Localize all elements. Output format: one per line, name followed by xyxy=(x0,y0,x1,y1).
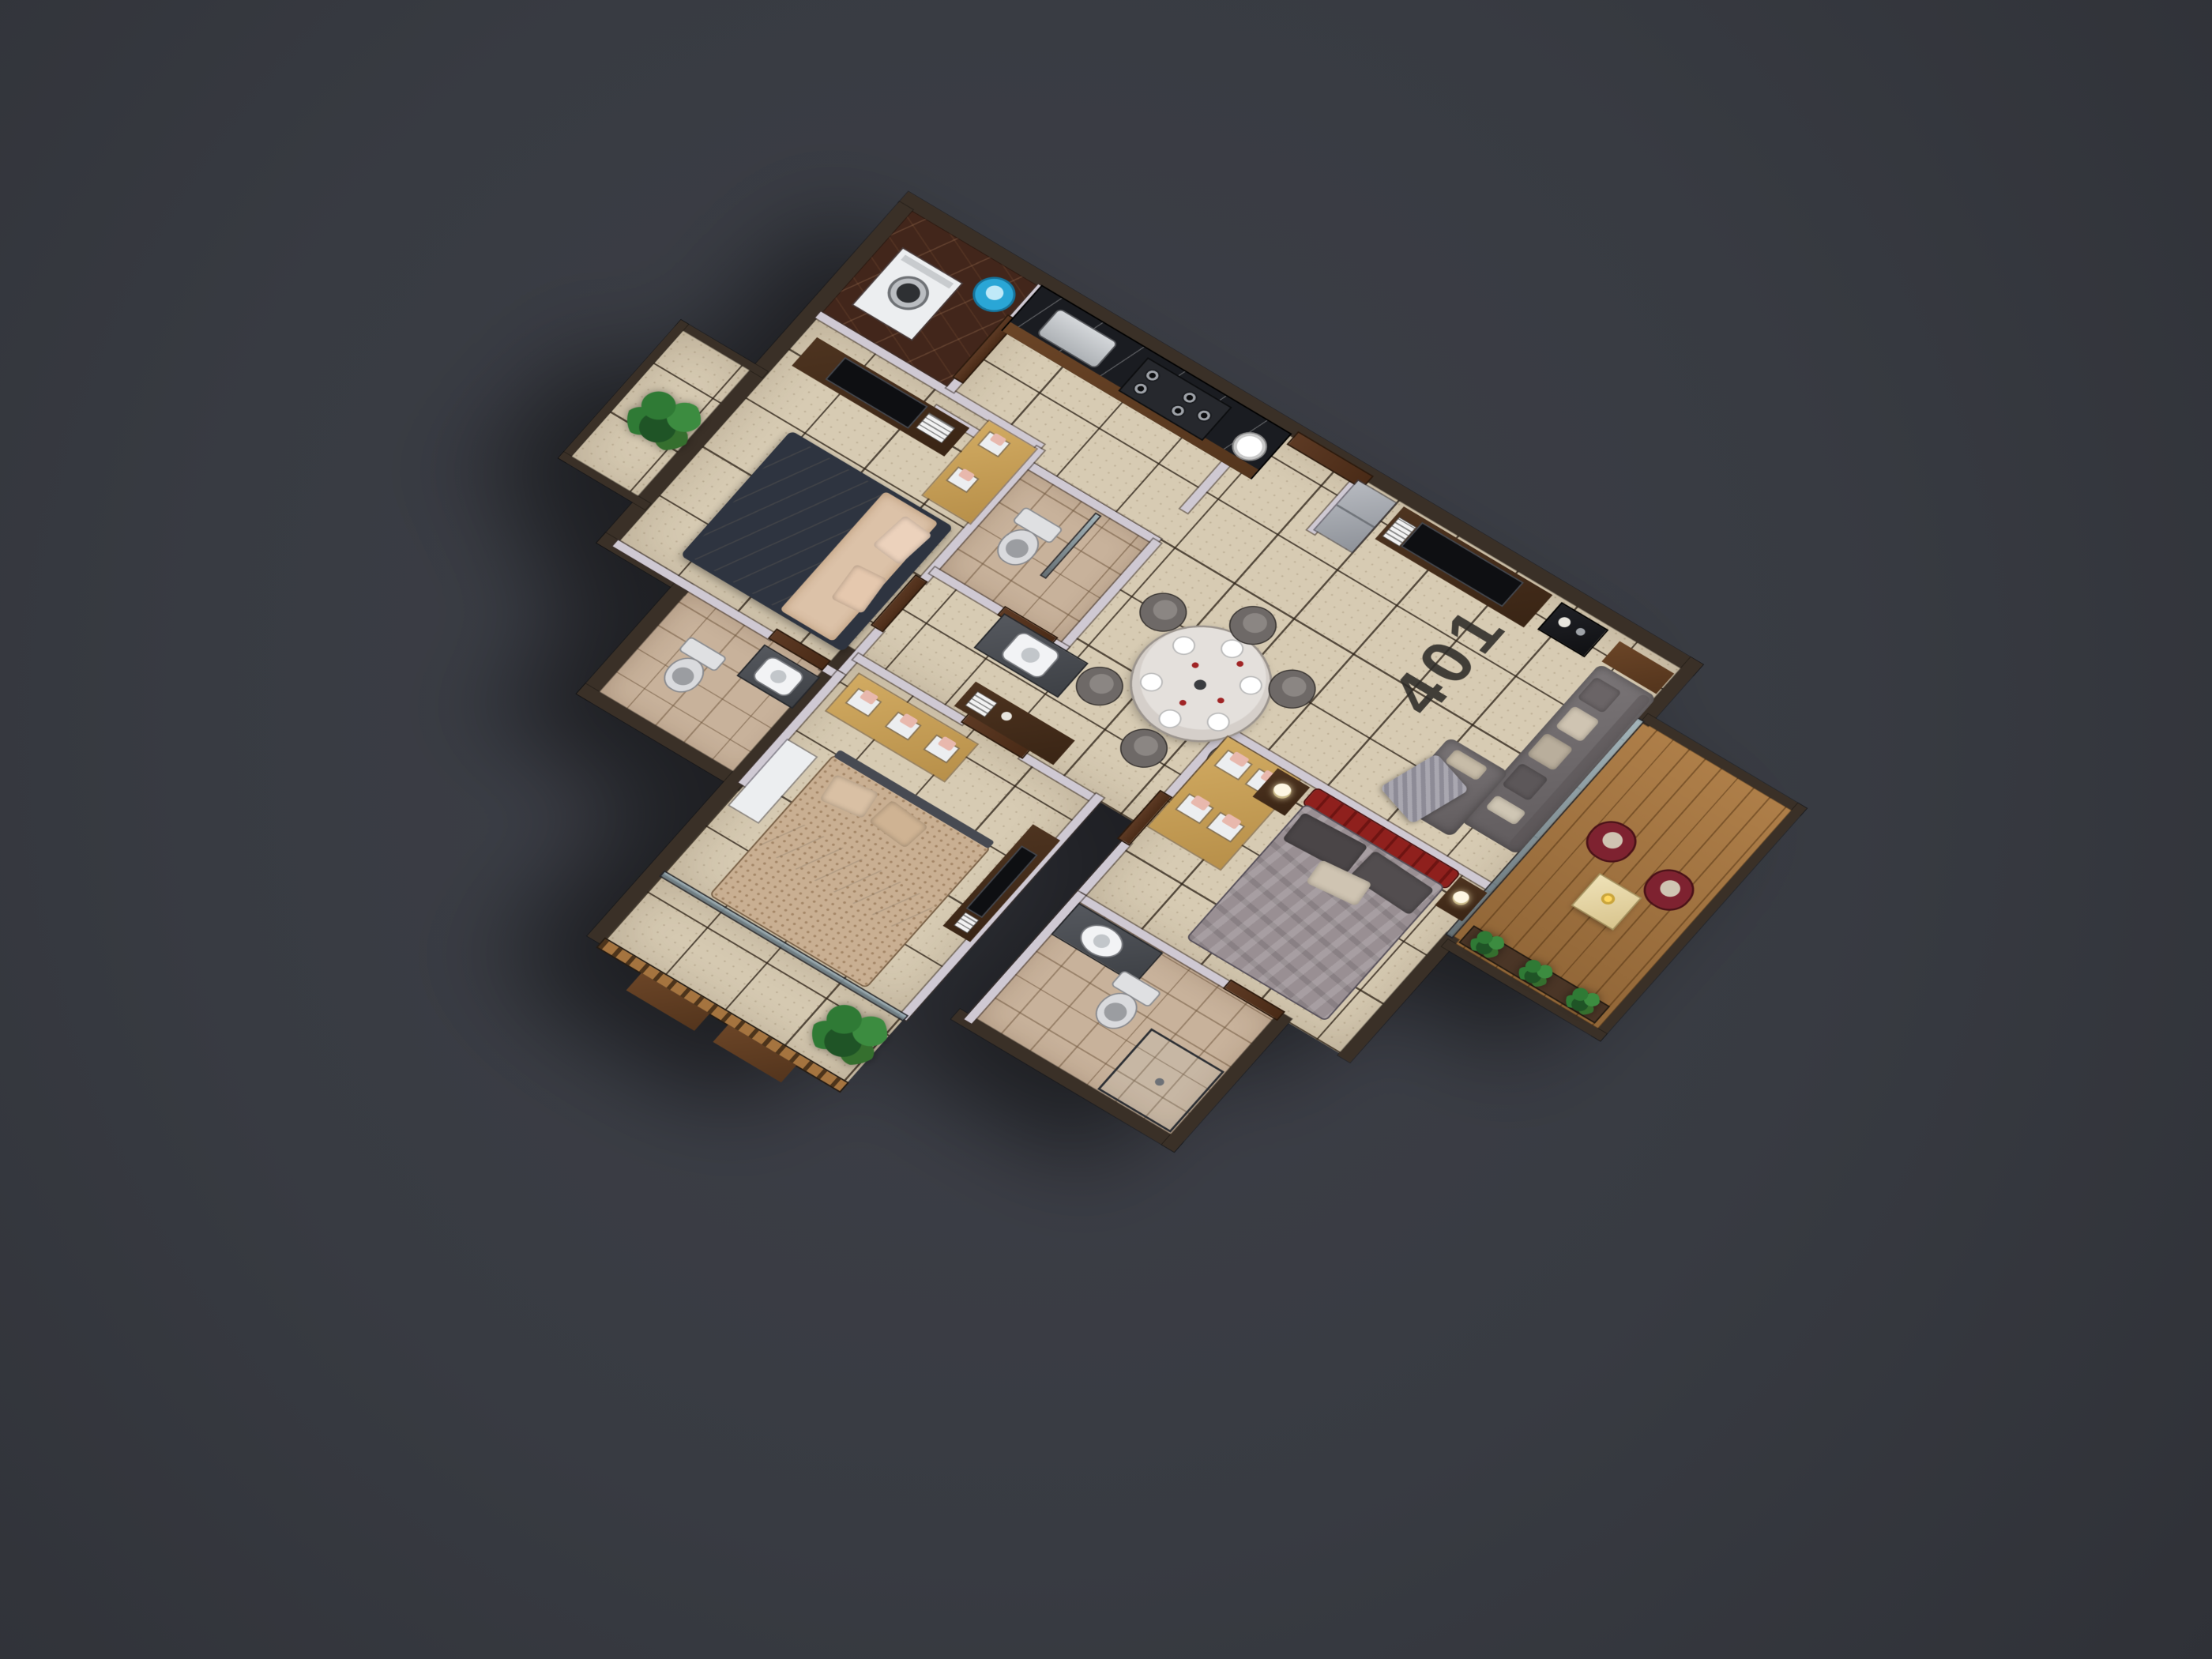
lamp-icon xyxy=(1449,889,1473,908)
books-bedroom2 xyxy=(916,413,954,442)
sofa-pillow xyxy=(1526,732,1574,771)
sofa-pillow xyxy=(1555,705,1600,743)
table-centerpiece xyxy=(1191,678,1209,692)
sofa-bolster xyxy=(1485,795,1526,826)
apartment-floor-plan: 401 xyxy=(273,161,1860,1403)
glass-red-icon xyxy=(1216,697,1225,705)
sofa-pillow xyxy=(1502,762,1549,801)
lamp-icon xyxy=(1270,781,1296,802)
glass-red-icon xyxy=(1191,661,1200,669)
scene-background: 401 xyxy=(0,0,2212,1659)
shower-drain-icon xyxy=(1153,1077,1166,1087)
glass-red-icon xyxy=(1236,660,1245,668)
books-hallway xyxy=(966,692,996,717)
glass-red-icon xyxy=(1178,699,1187,707)
plate-icon xyxy=(1205,710,1232,733)
vase-icon xyxy=(1574,626,1587,637)
vase-icon xyxy=(999,710,1014,723)
vase-icon xyxy=(1556,615,1573,630)
stove-burner-icon xyxy=(1130,380,1151,397)
plate-icon xyxy=(1138,671,1165,694)
fridge-door-split xyxy=(1336,504,1375,528)
stove-burner-icon xyxy=(1168,402,1189,419)
bed-pillow xyxy=(819,774,879,818)
plate-icon xyxy=(1170,634,1198,657)
stove-burner-icon xyxy=(1179,389,1200,406)
plate-icon xyxy=(1156,707,1183,730)
sofa-pillow xyxy=(1577,676,1622,713)
books-bedroom3 xyxy=(955,913,978,933)
stove-burner-icon xyxy=(1142,367,1163,384)
stove-burner-icon xyxy=(1194,407,1215,424)
plate-icon xyxy=(1237,674,1265,697)
table-lamp-icon xyxy=(1598,891,1617,907)
